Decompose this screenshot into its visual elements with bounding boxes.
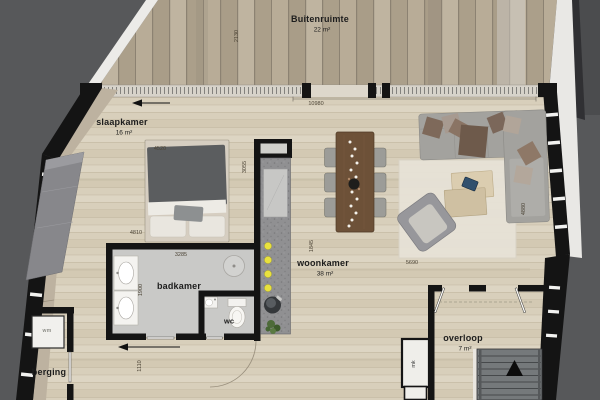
room-label-woonkamer: woonkamer	[297, 258, 349, 268]
mk-closet-label: mk	[411, 360, 417, 367]
room-label-buitenruimte: Buitenruimte	[291, 14, 349, 24]
room-label-wc: wc	[224, 317, 234, 326]
dimension-bed-width: 4520	[154, 146, 166, 152]
washing-machine-label: wm	[43, 328, 52, 334]
room-area-slaapkamer: 16 m²	[116, 130, 133, 137]
dimension-bathroom-width: 3285	[175, 252, 187, 258]
labels-layer: Buitenruimte 22 m² slaapkamer 16 m² badk…	[0, 0, 600, 400]
room-label-berging: berging	[32, 367, 66, 377]
dimension-terrace-width: 10980	[308, 101, 323, 107]
dimension-bedroom-width: 4810	[130, 230, 142, 236]
room-label-overloop: overloop	[443, 333, 483, 343]
room-area-woonkamer: 38 m²	[317, 271, 334, 278]
dimension-bathroom-depth: 1900	[138, 284, 144, 296]
room-area-buitenruimte: 22 m²	[314, 27, 331, 34]
room-label-slaapkamer: slaapkamer	[96, 117, 148, 127]
dimension-kitchen-zone: 1845	[309, 240, 315, 252]
dimension-storage-width: 1110	[137, 360, 143, 371]
dimension-bedroom-depth: 3055	[242, 161, 248, 173]
dimension-living-depth: 4880	[521, 203, 527, 215]
room-label-badkamer: badkamer	[157, 281, 201, 291]
room-area-overloop: 7 m²	[459, 346, 472, 353]
dimension-terrace-depth: 2130	[234, 30, 240, 42]
floorplan-canvas: Buitenruimte 22 m² slaapkamer 16 m² badk…	[0, 0, 600, 400]
dimension-living-width: 5690	[406, 260, 418, 266]
